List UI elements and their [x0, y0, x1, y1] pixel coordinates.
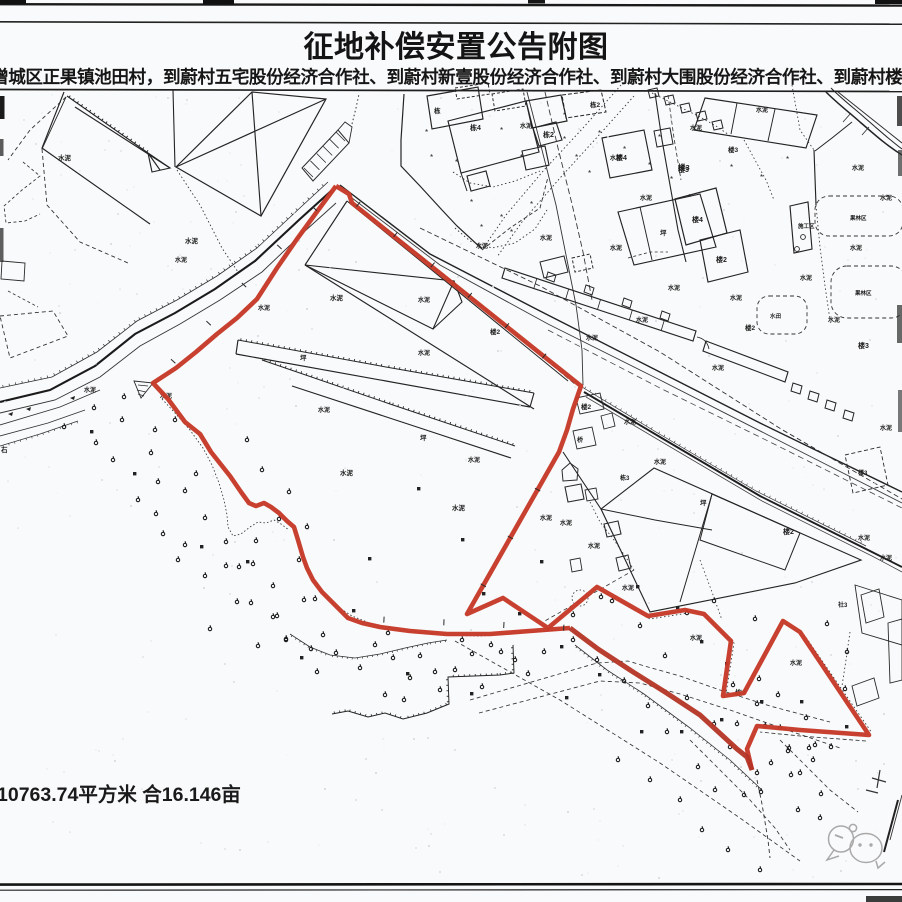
- svg-text:果林区: 果林区: [854, 289, 872, 297]
- svg-text:水泥: 水泥: [640, 194, 652, 202]
- svg-text:水泥: 水泥: [712, 364, 724, 372]
- svg-text:水泥: 水泥: [540, 234, 552, 242]
- svg-text:增城区正果镇池田村，到蔚村五宅股份经济合作社、到蔚村新壹股份: 增城区正果镇池田村，到蔚村五宅股份经济合作社、到蔚村新壹股份经济合作社、到蔚村大…: [0, 67, 902, 87]
- svg-text:水泥: 水泥: [58, 153, 72, 162]
- svg-text:水泥: 水泥: [850, 244, 862, 252]
- svg-text:水泥: 水泥: [610, 154, 622, 162]
- svg-text:水泥: 水泥: [880, 424, 892, 432]
- svg-text:水泥: 水泥: [476, 242, 488, 250]
- svg-text:*: *: [470, 198, 473, 207]
- svg-text:水泥: 水泥: [622, 584, 634, 592]
- svg-text:水泥: 水泥: [175, 256, 187, 264]
- svg-text:水泥: 水泥: [880, 194, 892, 202]
- svg-text:楼2: 楼2: [581, 402, 592, 411]
- svg-text:*: *: [563, 111, 566, 120]
- svg-text:*: *: [588, 169, 591, 178]
- svg-text:栋4: 栋4: [469, 123, 481, 132]
- svg-text:水泥: 水泥: [340, 468, 354, 477]
- svg-text:水泥: 水泥: [800, 274, 812, 282]
- svg-text:水泥: 水泥: [452, 503, 466, 512]
- svg-text:栋3: 栋3: [619, 474, 630, 482]
- svg-text:*: *: [520, 153, 523, 162]
- svg-text:*: *: [530, 200, 533, 209]
- svg-text:水泥: 水泥: [418, 296, 430, 304]
- svg-text:水泥: 水泥: [668, 284, 680, 292]
- svg-text:*: *: [648, 161, 651, 170]
- svg-text:*: *: [455, 158, 458, 167]
- svg-text:楼3: 楼3: [858, 469, 868, 477]
- svg-text:*: *: [688, 193, 691, 202]
- svg-text:水泥: 水泥: [418, 349, 430, 357]
- svg-text:果林区: 果林区: [849, 214, 867, 222]
- svg-text:水泥: 水泥: [588, 542, 600, 550]
- svg-text:水泥: 水泥: [586, 334, 598, 342]
- svg-text:水泥: 水泥: [852, 164, 864, 172]
- svg-text:水泥: 水泥: [756, 106, 768, 114]
- svg-text:水泥: 水泥: [790, 659, 802, 667]
- svg-text:栋2: 栋2: [542, 130, 554, 139]
- svg-text:水泥: 水泥: [636, 316, 648, 324]
- svg-text:社3: 社3: [837, 601, 848, 609]
- svg-text:水泥: 水泥: [84, 386, 96, 394]
- svg-text:*: *: [623, 145, 626, 154]
- svg-text:楼4: 楼4: [692, 215, 703, 224]
- svg-text:水泥: 水泥: [540, 514, 552, 522]
- svg-text:水泥: 水泥: [560, 519, 572, 527]
- svg-text:水泥: 水泥: [624, 418, 636, 426]
- svg-text:楼3: 楼3: [858, 341, 869, 350]
- svg-text:*: *: [575, 153, 578, 162]
- svg-text:*: *: [500, 213, 503, 222]
- svg-text:水泥: 水泥: [185, 236, 199, 245]
- svg-text:水泥: 水泥: [858, 534, 870, 542]
- svg-text:坪: 坪: [420, 433, 427, 442]
- svg-text:*: *: [670, 175, 673, 184]
- svg-text:楼2: 楼2: [745, 323, 756, 332]
- svg-text:水泥: 水泥: [468, 456, 480, 464]
- svg-text:*: *: [598, 129, 601, 138]
- svg-text:坪: 坪: [660, 228, 667, 237]
- svg-text:*: *: [480, 223, 483, 232]
- svg-text:*: *: [786, 155, 789, 164]
- svg-text:楼3: 楼3: [678, 165, 689, 174]
- svg-text:水泥: 水泥: [520, 122, 532, 130]
- svg-text:*: *: [730, 163, 733, 172]
- svg-text:桥: 桥: [577, 436, 584, 444]
- svg-text:征地补偿安置公告附图: 征地补偿安置公告附图: [304, 31, 609, 64]
- svg-text:水泥: 水泥: [730, 294, 742, 302]
- svg-text:*: *: [658, 133, 661, 142]
- svg-text:楼2: 楼2: [783, 527, 794, 536]
- svg-text:水泥: 水泥: [690, 124, 702, 132]
- svg-text:*: *: [500, 126, 503, 135]
- svg-text:栋2: 栋2: [589, 100, 601, 109]
- svg-text:施工区: 施工区: [798, 222, 815, 230]
- svg-text:水泥: 水泥: [258, 304, 270, 312]
- svg-text:*: *: [425, 128, 428, 137]
- svg-text:*: *: [760, 173, 763, 182]
- svg-text:*: *: [430, 153, 433, 162]
- svg-text:楼2: 楼2: [490, 327, 501, 336]
- svg-text:水泥: 水泥: [610, 244, 622, 252]
- svg-text:楼2: 楼2: [716, 255, 727, 264]
- svg-text:水泥: 水泥: [828, 316, 840, 324]
- svg-text:水泥: 水泥: [318, 406, 330, 414]
- svg-text:水泥: 水泥: [654, 458, 666, 466]
- svg-text:水泥: 水泥: [880, 554, 892, 562]
- svg-text:水田: 水田: [770, 312, 782, 320]
- svg-text:楼3: 楼3: [728, 145, 739, 154]
- svg-text:坪: 坪: [300, 353, 307, 362]
- svg-text:栋: 栋: [433, 106, 441, 115]
- svg-text:10763.74平方米 合16.146亩: 10763.74平方米 合16.146亩: [0, 783, 241, 806]
- svg-text:石: 石: [0, 446, 8, 454]
- svg-text:坪: 坪: [700, 498, 707, 507]
- svg-text:水泥: 水泥: [330, 293, 344, 302]
- svg-text:*: *: [510, 228, 513, 237]
- svg-text:*: *: [563, 135, 566, 144]
